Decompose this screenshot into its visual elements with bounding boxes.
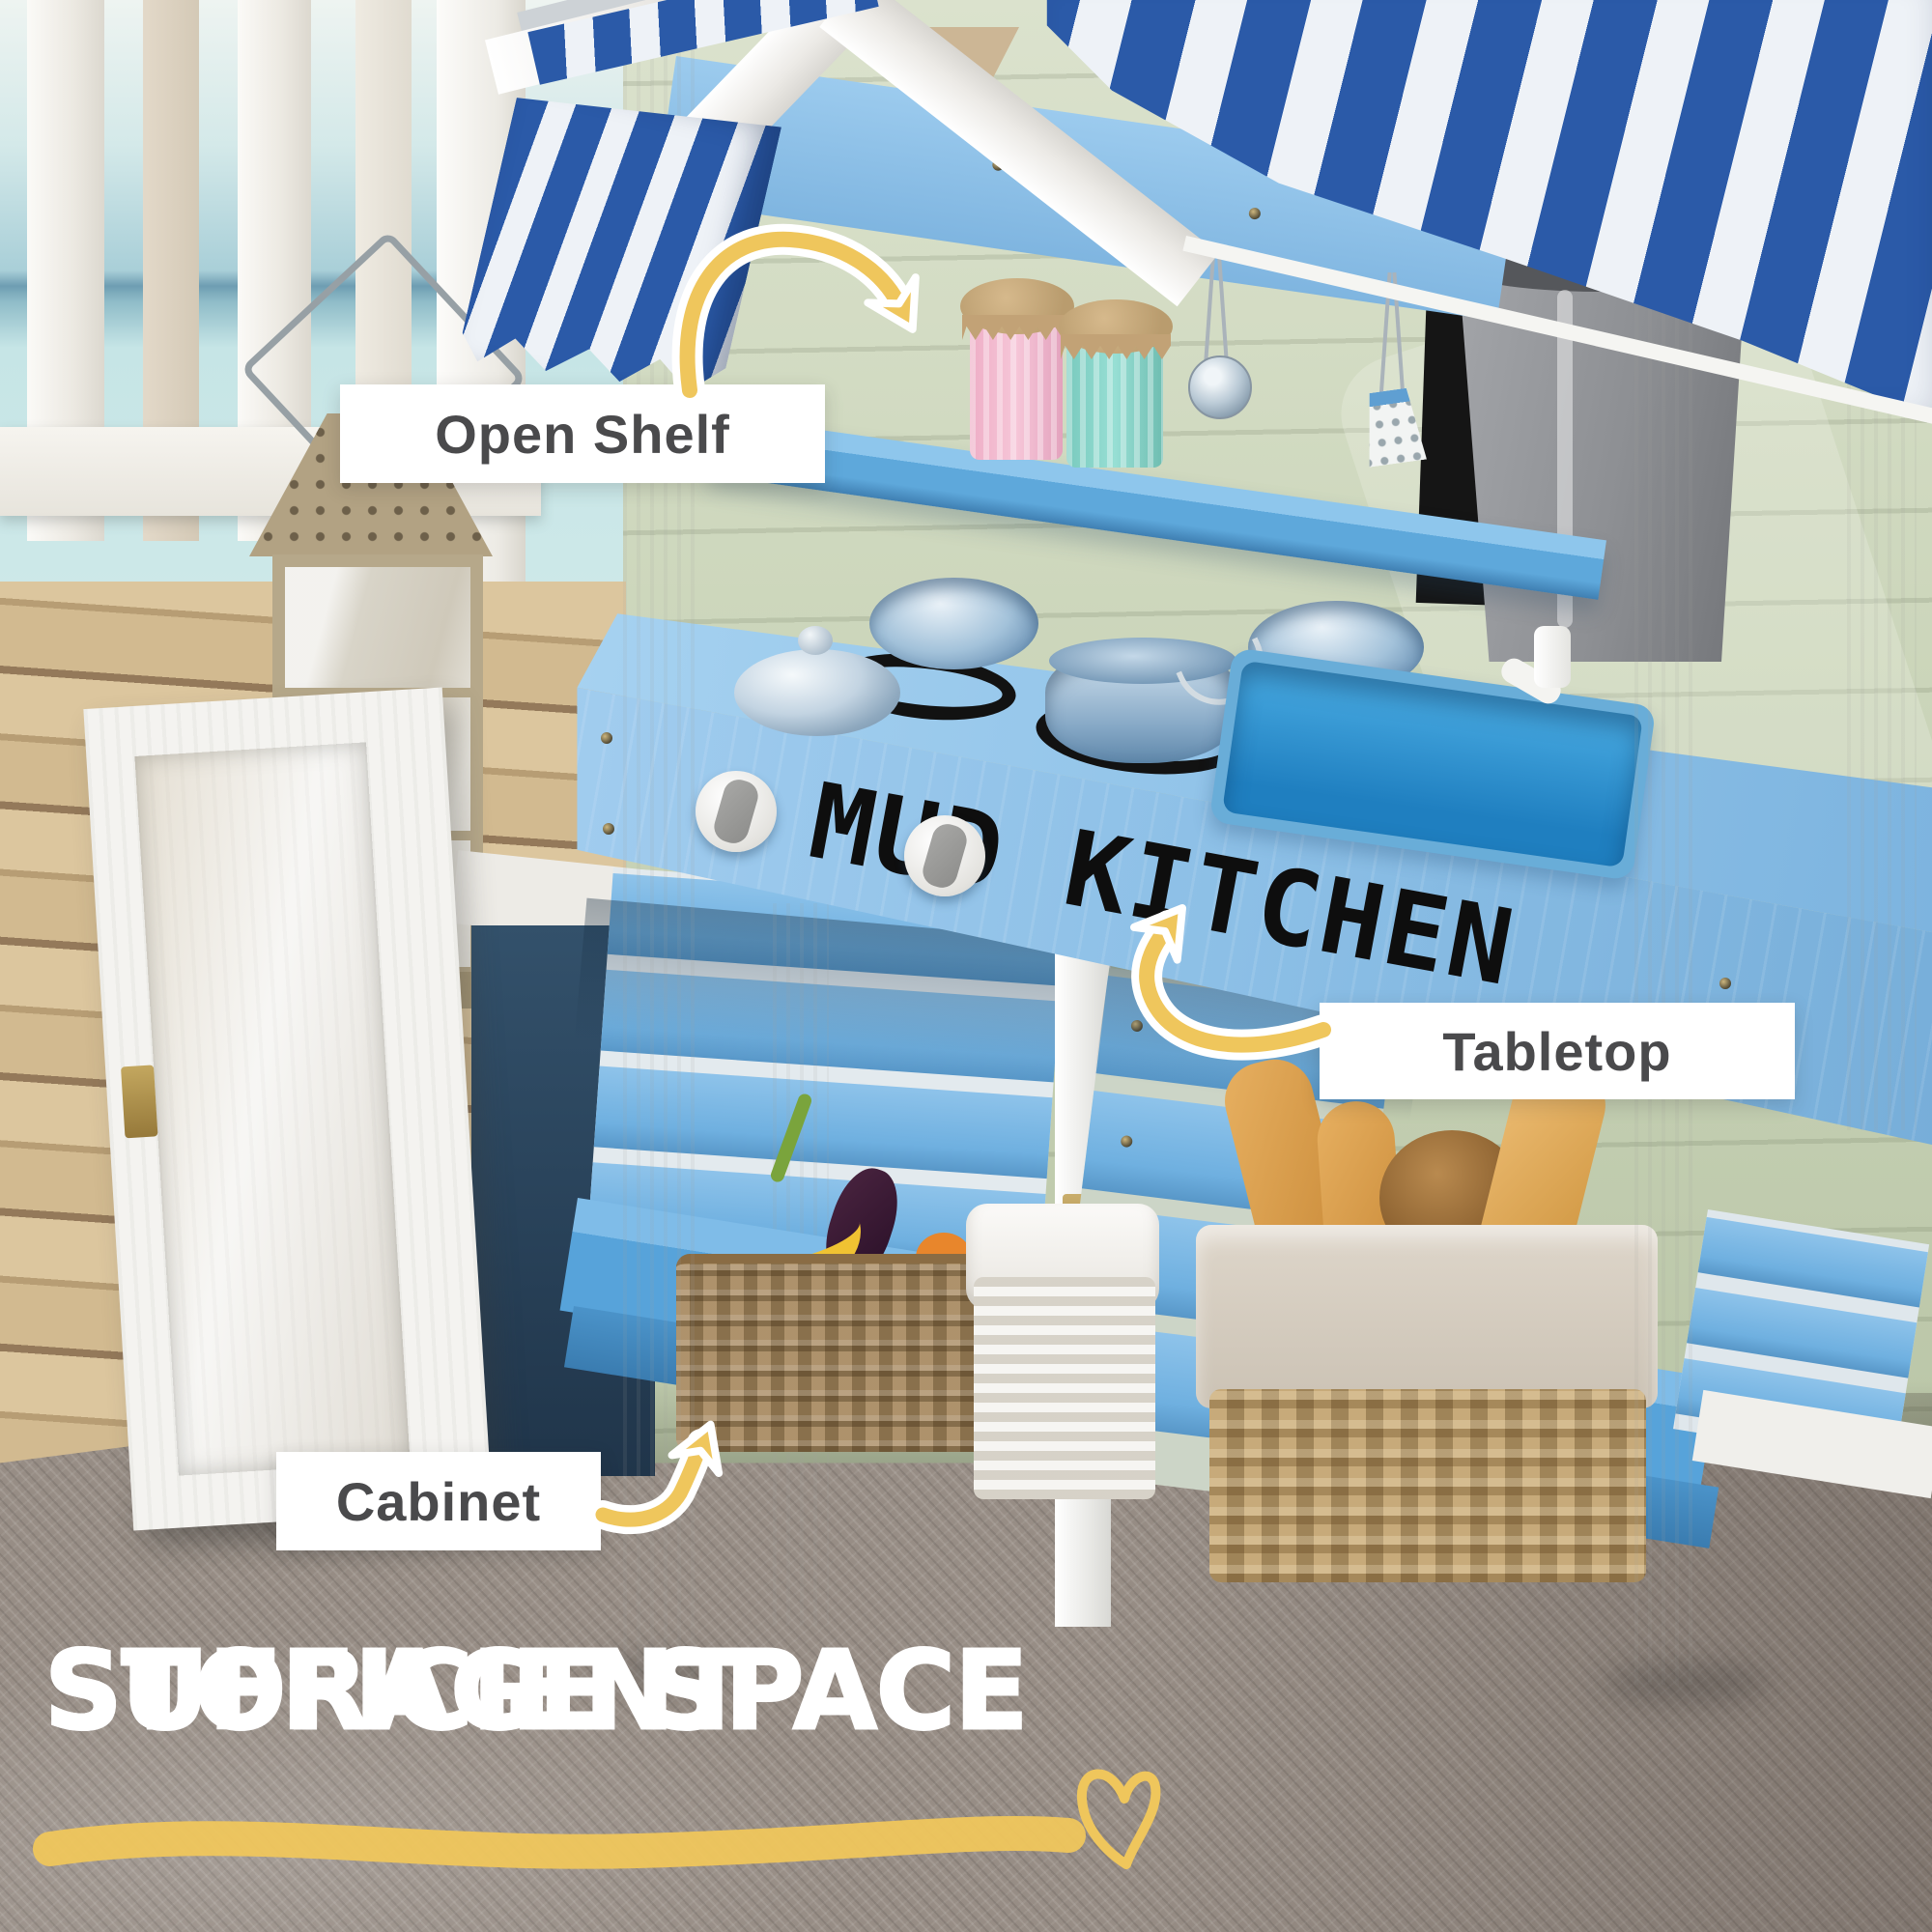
cabinet-door-open <box>83 687 492 1530</box>
knob-grip <box>920 820 971 891</box>
fruit-basket <box>676 1254 1000 1452</box>
tabletop-label-text: Tabletop <box>1442 1020 1671 1083</box>
product-marketing-image: MUD KITCHEN SUFFICIENT STORAGE SPACE <box>0 0 1932 1932</box>
screw <box>601 732 612 744</box>
screw <box>1719 978 1731 989</box>
stove-knob <box>696 771 777 852</box>
knob-grip <box>711 776 762 846</box>
open-shelf-label: Open Shelf <box>340 384 825 483</box>
front-right-post <box>1634 243 1698 1685</box>
bread-basket-liner <box>1196 1225 1658 1408</box>
headline-line2: STORAGE SPACE <box>44 1631 1027 1754</box>
screw <box>1248 207 1262 220</box>
white-woven-basket <box>974 1277 1155 1499</box>
tank-spigot <box>1534 626 1571 688</box>
stove-knob <box>904 815 985 896</box>
cabinet-label-text: Cabinet <box>336 1470 541 1533</box>
bread-basket <box>1209 1389 1646 1582</box>
pot-lid <box>734 649 900 736</box>
hanging-ladle <box>1188 355 1252 419</box>
tabletop-label: Tabletop <box>1320 1003 1795 1099</box>
screw <box>603 823 614 835</box>
door-glass-pane <box>134 742 410 1475</box>
cabinet-label: Cabinet <box>276 1452 601 1550</box>
pot-lid-knob <box>798 626 833 655</box>
metal-bowl <box>869 578 1038 669</box>
door-hinge <box>121 1065 157 1138</box>
leg-shadow <box>1604 1663 1768 1704</box>
open-shelf-label-text: Open Shelf <box>435 403 730 466</box>
